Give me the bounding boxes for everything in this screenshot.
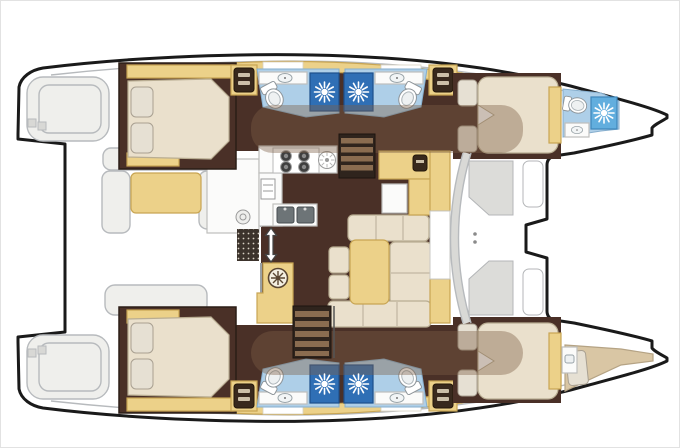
pillow	[131, 87, 153, 117]
pillow	[131, 323, 153, 353]
chart-desk-arm	[409, 179, 431, 215]
dresser-icon	[433, 384, 453, 408]
washbasin-icon	[278, 394, 292, 403]
door-handle-icon	[473, 232, 477, 236]
port-aft-cabin	[119, 63, 257, 169]
cockpit-bench-left	[102, 171, 130, 233]
sofa-cushion	[348, 215, 429, 241]
washbasin-icon	[565, 355, 574, 363]
cleat-icon	[38, 346, 46, 354]
round-sink-icon	[319, 152, 336, 169]
washbasin-icon	[571, 126, 582, 133]
washbasin-icon	[278, 74, 292, 83]
dresser-icon	[234, 384, 254, 408]
faucet-icon	[284, 208, 287, 211]
oven-icon	[261, 179, 275, 199]
bow-bulkhead	[549, 87, 561, 143]
washbasin-icon	[390, 74, 404, 83]
sofa-stool	[329, 247, 349, 273]
faucet-icon	[304, 208, 307, 211]
sofa-stool	[329, 275, 349, 299]
round-vent-icon	[269, 269, 288, 288]
cockpit-table	[131, 173, 201, 213]
port-stern-steps	[27, 77, 109, 141]
entry-doormat-dots	[237, 229, 259, 261]
catamaran-floorplan	[0, 0, 680, 448]
port-companionway	[339, 134, 375, 178]
starboard-aft-cabin	[119, 307, 257, 413]
cleat-icon	[38, 122, 46, 130]
floorplan-svg	[1, 1, 680, 448]
cabin-shelf	[127, 65, 233, 78]
cleat-icon	[28, 349, 36, 357]
forward-door	[430, 211, 450, 279]
burner-icon	[299, 162, 310, 173]
bulkhead-panel	[430, 279, 450, 323]
bulkhead-panel	[430, 151, 450, 211]
salon-table	[350, 240, 389, 304]
pillow	[131, 359, 153, 389]
pillow	[131, 123, 153, 153]
cabin-shelf	[127, 398, 233, 411]
cockpit-wetbar-unit	[207, 159, 259, 233]
coachroof-shadow-port	[251, 105, 523, 153]
coachroof-shadow-starboard	[251, 331, 523, 375]
cleat-icon	[28, 119, 36, 127]
sofa-cushion	[328, 301, 431, 327]
washbasin-icon	[390, 394, 404, 403]
pillow	[458, 80, 477, 106]
door-handle-icon	[473, 240, 477, 244]
dresser-icon	[234, 68, 254, 92]
bow-seat-pad	[523, 161, 543, 207]
starboard-companionway	[293, 306, 334, 358]
instrument-icon-slit	[416, 160, 424, 163]
bow-seat-pad	[523, 269, 543, 315]
dresser-icon	[433, 68, 453, 92]
starboard-stern-steps	[27, 335, 109, 399]
grill-icon	[236, 210, 250, 224]
burner-icon	[281, 162, 292, 173]
bow-bulkhead	[549, 333, 561, 389]
nav-seat	[382, 184, 407, 213]
forward-bulkhead	[430, 151, 450, 323]
